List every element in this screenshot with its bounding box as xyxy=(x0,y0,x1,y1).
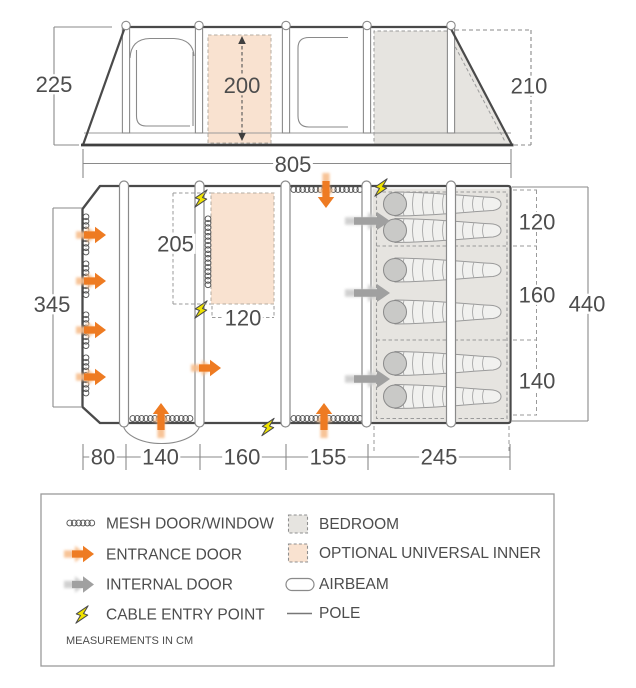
svg-text:ENTRANCE DOOR: ENTRANCE DOOR xyxy=(106,547,242,564)
svg-text:120: 120 xyxy=(519,210,556,235)
svg-text:CABLE ENTRY POINT: CABLE ENTRY POINT xyxy=(106,607,265,624)
svg-text:805: 805 xyxy=(275,152,312,177)
svg-text:440: 440 xyxy=(569,292,606,317)
svg-text:245: 245 xyxy=(421,445,458,470)
svg-text:160: 160 xyxy=(519,283,556,308)
svg-text:210: 210 xyxy=(511,74,548,99)
svg-text:MESH DOOR/WINDOW: MESH DOOR/WINDOW xyxy=(106,516,274,533)
svg-text:200: 200 xyxy=(224,73,261,98)
svg-text:160: 160 xyxy=(224,445,261,470)
svg-text:AIRBEAM: AIRBEAM xyxy=(319,576,389,593)
svg-text:345: 345 xyxy=(34,292,71,317)
svg-text:205: 205 xyxy=(157,232,194,257)
svg-text:BEDROOM: BEDROOM xyxy=(319,516,399,533)
svg-text:80: 80 xyxy=(91,445,115,470)
svg-text:120: 120 xyxy=(225,306,262,331)
svg-text:MEASUREMENTS IN CM: MEASUREMENTS IN CM xyxy=(66,635,193,647)
svg-text:155: 155 xyxy=(310,445,347,470)
svg-text:POLE: POLE xyxy=(319,605,360,622)
svg-text:OPTIONAL UNIVERSAL INNER: OPTIONAL UNIVERSAL INNER xyxy=(319,545,541,562)
svg-text:140: 140 xyxy=(142,445,179,470)
svg-text:INTERNAL DOOR: INTERNAL DOOR xyxy=(106,577,233,594)
svg-text:140: 140 xyxy=(519,369,556,394)
svg-text:225: 225 xyxy=(36,72,73,97)
